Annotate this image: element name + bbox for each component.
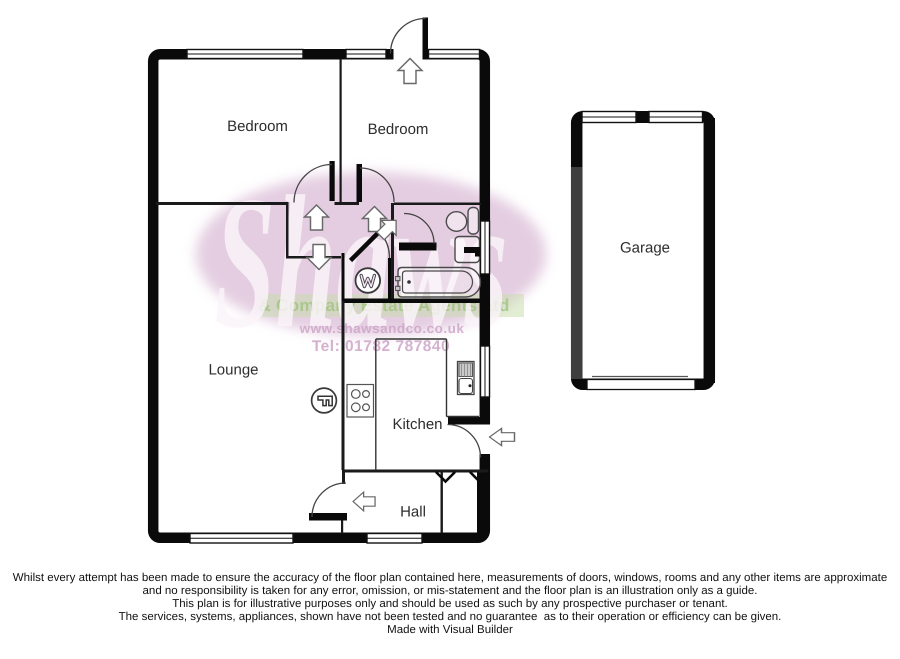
svg-text:Lounge: Lounge (208, 362, 258, 379)
svg-text:Garage: Garage (620, 240, 670, 257)
svg-text:Bedroom: Bedroom (368, 121, 429, 138)
svg-text:Kitchen: Kitchen (392, 416, 442, 433)
svg-text:Bedroom: Bedroom (227, 118, 288, 135)
svg-text:Hall: Hall (400, 504, 426, 521)
